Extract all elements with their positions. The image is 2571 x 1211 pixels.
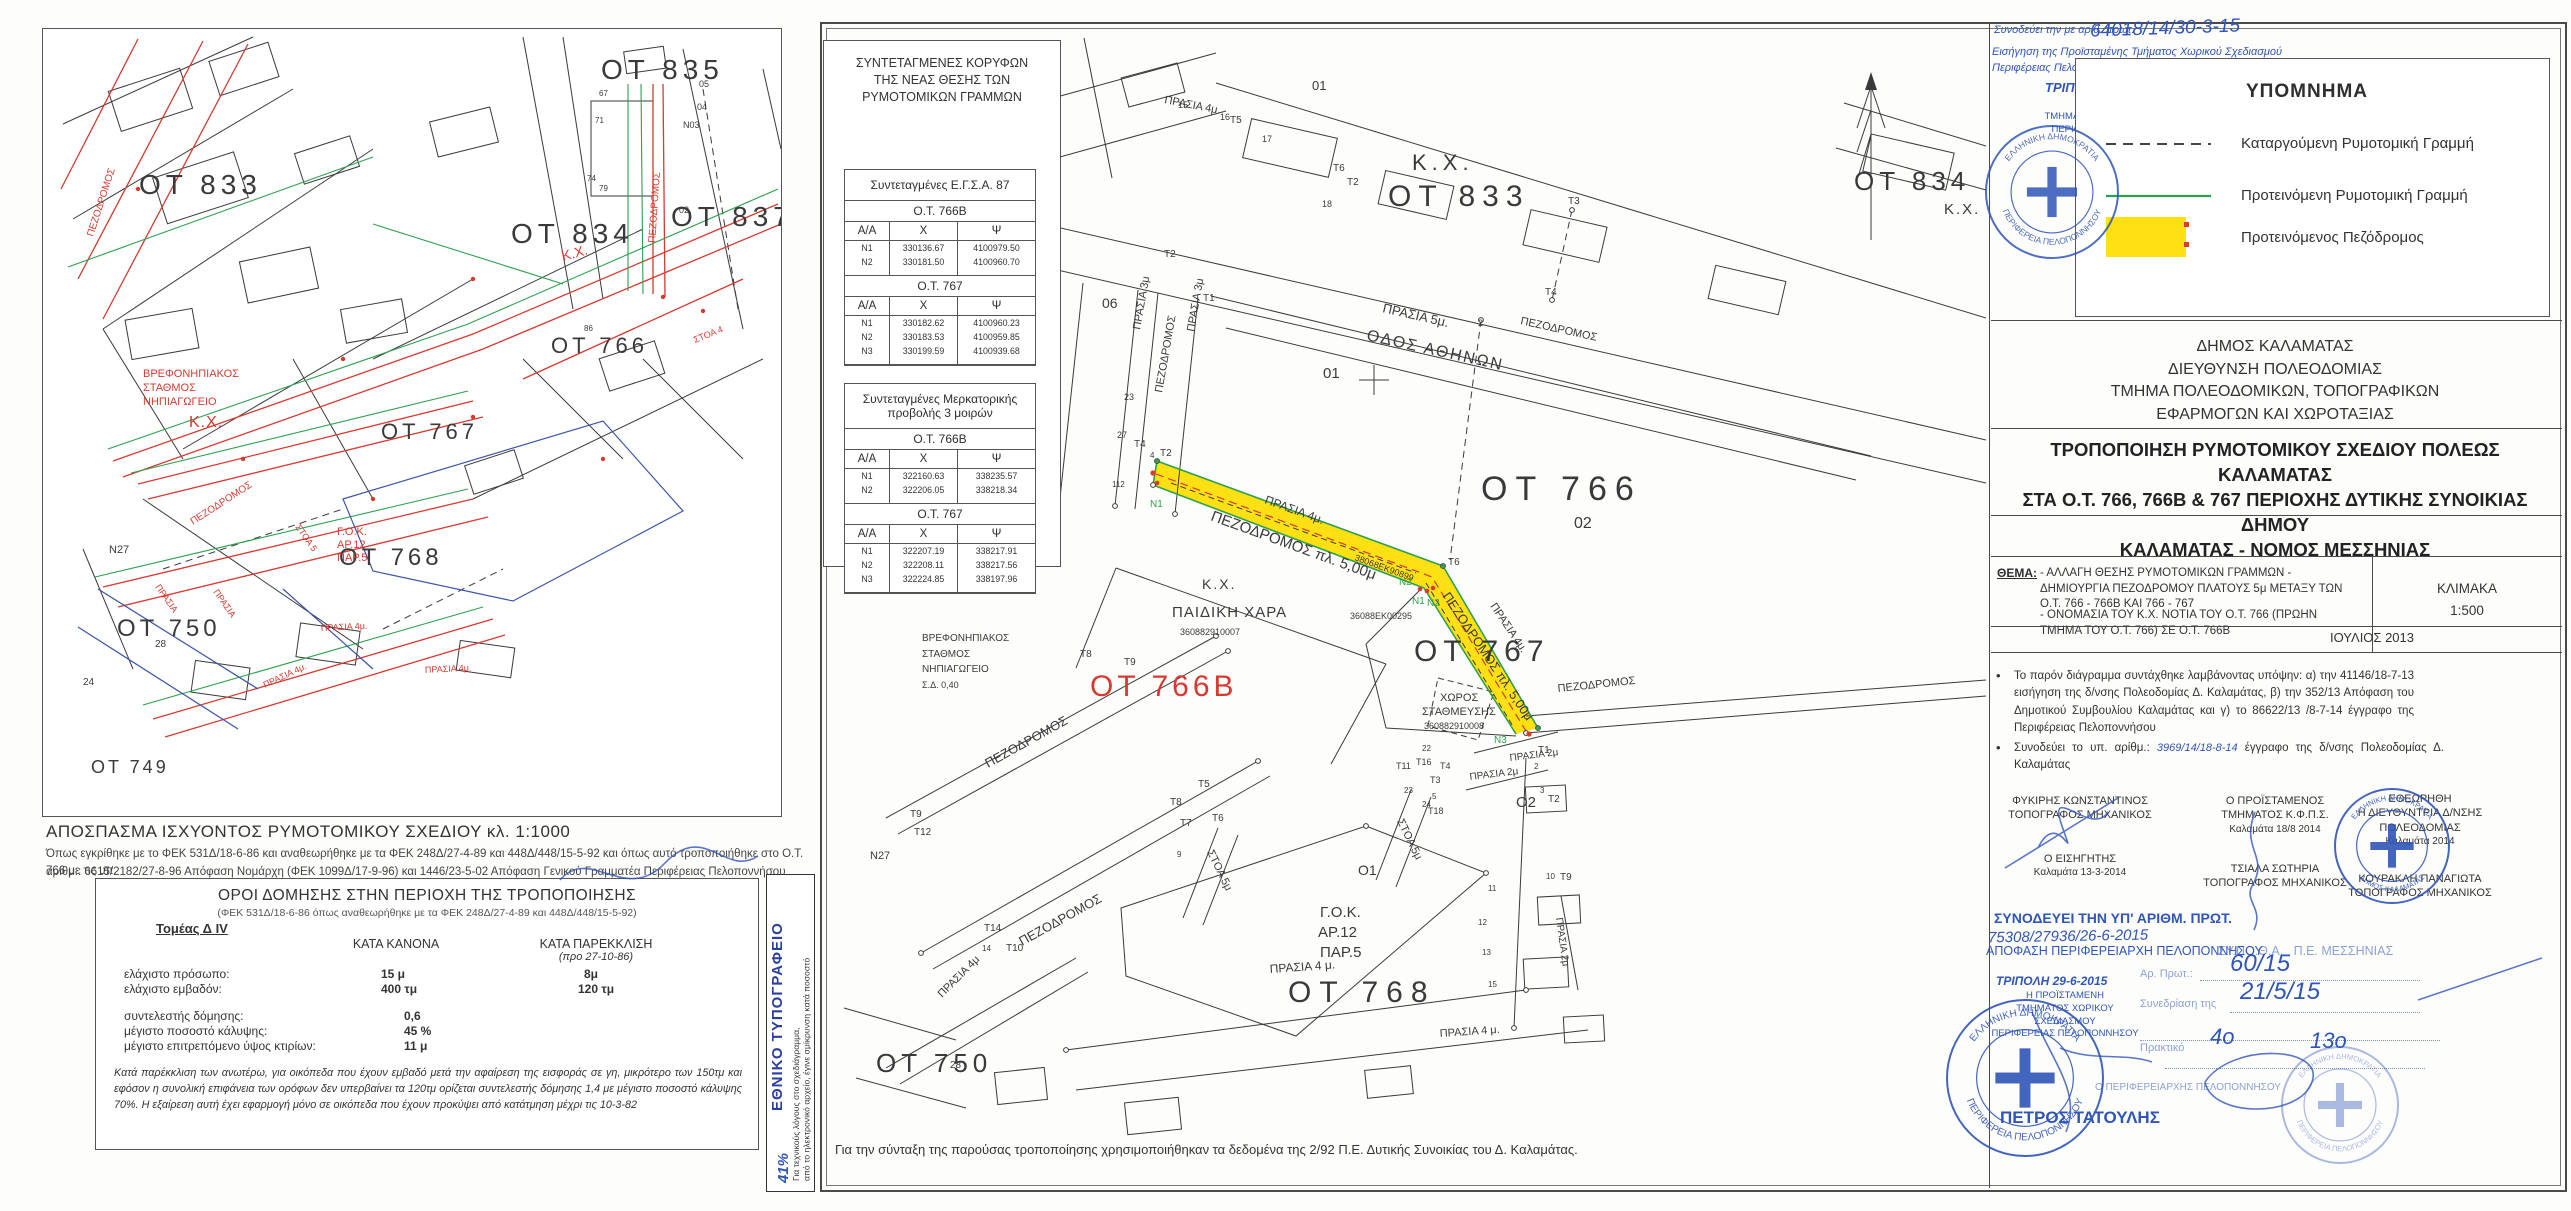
map-label: Ν2 <box>1399 577 1412 588</box>
map-label: Τ6 <box>1448 557 1460 568</box>
tb-line2 <box>1991 428 2562 429</box>
map-label: ΠΕΖΟΔΡΟΜΟΣ <box>1016 891 1104 949</box>
map-label: ΣΤΑΘΜΕΥΣΗΣ <box>1422 706 1496 718</box>
coords-value: 4100959.85 <box>957 330 1035 344</box>
approval-line1: ΣΥΝΟΔΕΥΕΙ ΤΗΝ ΥΠ' ΑΡΙΘΜ. ΠΡΩΤ. <box>1994 910 2232 926</box>
coords-header: Ψ <box>957 450 1035 469</box>
coords-header: Χ <box>889 297 957 316</box>
title-line3: ΚΑΛΑΜΑΤΑΣ - ΝΟΜΟΣ ΜΕΣΣΗΝΙΑΣ <box>1995 538 2555 563</box>
printing-office-title: ΕΘΝΙΚΟ ΤΥΠΟΓΡΑΦΕΙΟ <box>769 881 786 1111</box>
map-label: ΠΕΖΟΔΡΟΜΟΣ <box>85 167 117 238</box>
map-label: ΧΩΡΟΣ <box>1440 692 1478 704</box>
note2-prefix: Συνοδεύει το υπ. αρίθμ.: <box>2014 742 2150 754</box>
map-label: ΝΗΠΙΑΓΩΓΕΙΟ <box>143 396 217 408</box>
coords-value: 4100979.50 <box>957 241 1035 255</box>
praktiko-dots <box>2165 1056 2425 1069</box>
perifereiarchis-name: ΠΕΤΡΟΣ ΤΑΤΟΥΛΗΣ <box>2000 1108 2160 1128</box>
dept-line4: ΕΦΑΡΜΟΓΩΝ ΚΑΙ ΧΩΡΟΤΑΞΙΑΣ <box>1995 404 2555 427</box>
map-label: ΠΕΖΟΔΡΟΜΟΣ <box>1153 314 1178 393</box>
map-label: Τ2 <box>1160 448 1172 459</box>
reduction-percentage: 41% <box>775 1133 792 1183</box>
map-label: Ο2 <box>1516 794 1536 811</box>
map-label: 3 <box>1540 786 1545 795</box>
map-label: Ν1 <box>1150 499 1163 510</box>
map-label: ΟΤ 749 <box>91 757 169 777</box>
map-label: 28 <box>950 1060 962 1071</box>
coords-value: 338197.96 <box>957 572 1035 592</box>
map-label: 2 <box>1534 762 1539 771</box>
coords-table: Συντεταγμένες Μερκατορικής προβολής 3 μο… <box>844 383 1036 594</box>
dept-line1: ΔΗΜΟΣ ΚΑΛΑΜΑΤΑΣ <box>1995 336 2555 359</box>
map-label: Τ6 <box>1333 163 1345 174</box>
coords-value: Ν2 <box>845 558 889 572</box>
map-label: Τ1 <box>1203 293 1215 304</box>
tb-line3 <box>1991 515 2562 516</box>
coords-header: Α/Α <box>845 450 889 469</box>
tb-line6 <box>1991 626 2562 627</box>
klimaka-value: 1:500 <box>2372 600 2562 622</box>
dept-line3: ΤΜΗΜΑ ΠΟΛΕΟΔΟΜΙΚΩΝ, ΤΟΠΟΓΡΑΦΙΚΩΝ <box>1995 381 2555 404</box>
map-label: Τ16 <box>1416 757 1432 767</box>
map-label: 24 <box>83 677 95 688</box>
coords-header: Χ <box>889 525 957 544</box>
tb-line1 <box>1991 320 2562 321</box>
map-label: Γ.Ο.Κ. <box>1320 904 1361 921</box>
map-label: Τ18 <box>1428 806 1444 816</box>
coords-value: 322208.11 <box>889 558 957 572</box>
map-label: 12 <box>1478 918 1487 927</box>
map-label: 67 <box>599 89 608 98</box>
map-label: Τ2 <box>1164 249 1176 260</box>
terms-value: 0,6 <box>404 1009 421 1023</box>
coords-header: Ψ <box>957 297 1035 316</box>
coords-value: 330199.59 <box>889 344 957 364</box>
thema-item1: - ΑΛΛΑΓΗ ΘΕΣΗΣ ΡΥΜΟΤΟΜΙΚΩΝ ΓΡΑΜΜΩΝ - ΔΗΜ… <box>2040 566 2360 613</box>
dept-line2: ΔΙΕΥΘΥΝΣΗ ΠΟΛΕΟΔΟΜΙΑΣ <box>1995 359 2555 382</box>
coords-value: 4100939.68 <box>957 344 1035 364</box>
map-label: Κ.Χ. <box>189 414 223 431</box>
map-label: Σ.Δ. 0,40 <box>922 680 959 690</box>
map-label: ΠΡΑΣΙΑ 4μ. <box>425 663 472 675</box>
map-label: N27 <box>109 544 129 556</box>
map-label: ΠΕΖΟΔΡΟΜΟΣ <box>1557 675 1636 695</box>
map-label: 01 <box>1323 365 1340 382</box>
map-label: ΠΡΑΣΙΑ 4μ. <box>1163 94 1221 117</box>
map-label: Τ14 <box>984 923 1002 934</box>
map-label: Τ7 <box>1180 818 1192 829</box>
praktiko-dots-top <box>2140 1028 2440 1041</box>
coords-table-name: Συντεταγμένες Ε.Γ.Σ.Α. 87 <box>845 170 1035 201</box>
sig1-title: Ο ΕΙΣΗΓΗΤΗΣ <box>2000 852 2160 866</box>
map-label: ΠΡΑΣΙΑ 4 μ. <box>1439 1024 1500 1040</box>
map-label: Τ12 <box>914 827 932 838</box>
map-label: 23 <box>1124 392 1134 402</box>
coords-value: 322207.19 <box>889 544 957 558</box>
terms-value: 15 μ <box>381 967 405 981</box>
map-label: 02 <box>1574 515 1592 532</box>
coords-value: 338218.34 <box>957 483 1035 503</box>
map-label: ΟΤ 833 <box>139 169 262 200</box>
map-label: Τ4 <box>1134 439 1146 450</box>
terms-value: 11 μ <box>404 1039 427 1053</box>
map-label: Ν2 <box>1427 598 1440 609</box>
map-label: ΠΑΡ.5 <box>337 552 367 564</box>
legend-yellow-dot2 <box>2184 242 2189 247</box>
coords-block-name: Ο.Τ. 766Β <box>845 429 1035 450</box>
coords-table: Συντεταγμένες Ε.Γ.Σ.Α. 87Ο.Τ. 766ΒΑ/ΑΧΨΝ… <box>844 169 1036 366</box>
existing-plan-map: ΟΤ 833ΟΤ 835ΟΤ 834Κ.Χ.ΟΤ 837ΟΤ 766ΟΤ 767… <box>42 28 782 817</box>
map-label: 15 <box>1178 100 1188 110</box>
map-label: Ν1 <box>1412 596 1425 607</box>
legend-swatch-green <box>2106 181 2216 211</box>
sig1-name: ΦΥΚΙΡΗΣ ΚΩΝΣΤΑΝΤΙΝΟΣ <box>2000 794 2160 808</box>
coords-header: Α/Α <box>845 297 889 316</box>
map-label: 01 <box>1312 78 1326 93</box>
map-label: 11 <box>1488 884 1497 893</box>
map-label: Τ8 <box>1080 649 1092 660</box>
map-label: ΟΤ 750 <box>117 615 221 642</box>
map-label: ΟΤ 750 <box>876 1048 992 1078</box>
note2-number: 3969/14/18-8-14 <box>2157 742 2238 754</box>
map-label: ΟΤ 833 <box>1388 180 1530 213</box>
map-label: ΠΡΑΣΙΑ 5μ. <box>1381 300 1450 330</box>
map-label: Ο1 <box>1358 862 1377 878</box>
map-label: 14 <box>982 944 991 953</box>
map-label: Τ11 <box>1396 761 1411 771</box>
map-label: ΟΤ 768 <box>1288 976 1436 1009</box>
building-terms-table: ΟΡΟΙ ΔΟΜΗΣΗΣ ΣΤΗΝ ΠΕΡΙΟΧΗ ΤΗΣ ΤΡΟΠΟΠΟΙΗΣ… <box>95 878 759 1150</box>
map-label: 05 <box>699 79 709 89</box>
printing-office-line2: από το ηλεκτρονικό αρχείο, έγινε <box>802 1057 812 1181</box>
legend-title: ΥΠΟΜΝΗΜΑ <box>2246 81 2368 103</box>
map-label: Τ6 <box>1212 813 1224 824</box>
map-label: Τ2 <box>1347 177 1359 188</box>
map-label: 23 <box>1404 786 1413 795</box>
map-label: ΠΡΑΣΙΑ 2μ <box>1469 766 1519 783</box>
terms-col-kanona: ΚΑΤΑ ΚΑΝΟΝΑ <box>316 937 476 951</box>
center-map-caption: Για την σύνταξη της παρούσας τροποποίηση… <box>835 1142 1578 1157</box>
map-label: 36088ΕΚ00295 <box>1350 611 1412 621</box>
map-label: ΠΡΑΣΙΑ 4 μ. <box>1269 957 1335 976</box>
map-label: ΟΤ 766Β <box>1090 670 1238 703</box>
coords-block-name: Ο.Τ. 767 <box>845 276 1035 297</box>
map-label: 79 <box>599 184 608 193</box>
coords-value: 4100960.70 <box>957 255 1035 275</box>
approval-pr2: ΤΜΗΜΑΤΟΣ ΧΩΡΙΚΟΥ ΣΧΕΔΙΑΣΜΟΥ <box>1990 1003 2140 1029</box>
coords-value: 4100960.23 <box>957 316 1035 330</box>
coords-value: Ν1 <box>845 316 889 330</box>
map-label: 16 <box>1220 112 1230 122</box>
coords-header: Χ <box>889 450 957 469</box>
coords-head2: ΤΗΣ ΝΕΑΣ ΘΕΣΗΣ ΤΩΝ <box>824 72 1060 89</box>
sig1-date: Καλαμάτα 13-3-2014 <box>2000 866 2160 879</box>
map-label: ΣΤΑΘΜΟΣ <box>143 382 196 394</box>
map-label: ΟΤ 766 <box>551 333 648 358</box>
plan-sheet: ΟΤ 833ΟΤ 835ΟΤ 834Κ.Χ.ΟΤ 837ΟΤ 766ΟΤ 767… <box>0 0 2571 1211</box>
coords-header: Χ <box>889 222 957 241</box>
terms-value: 400 τμ <box>381 982 417 996</box>
map-label: 112 <box>1112 480 1125 489</box>
map-label: 5 <box>1432 792 1437 801</box>
map-label: ΠΡΑΣΙΑ <box>153 582 179 614</box>
map-label: 9 <box>1177 850 1182 859</box>
sig3-title: Η ΔΙΕΥΘΥΝΤΡΙΑ Δ/ΝΣΗΣ ΠΟΛΕΟΔΟΜΙΑΣ <box>2320 806 2520 835</box>
title-line2: ΣΤΑ Ο.Τ. 766, 766Β & 767 ΠΕΡΙΟΧΗΣ ΔΥΤΙΚΗ… <box>1995 488 2555 538</box>
coords-value: Ν3 <box>845 572 889 592</box>
thema-label: ΘΕΜΑ: <box>1997 566 2037 580</box>
arprot-value: 60/15 <box>2230 950 2290 978</box>
coords-head1: ΣΥΝΤΕΤΑΓΜΕΝΕΣ ΚΟΡΥΦΩΝ <box>824 55 1060 72</box>
top-annotation-line2: Εισήγηση της Προϊσταμένης Τμήματος Χωρικ… <box>1992 46 2282 58</box>
coords-value: 330183.53 <box>889 330 957 344</box>
signature-col1-title: Ο ΕΙΣΗΓΗΤΗΣ Καλαμάτα 13-3-2014 <box>2000 852 2160 879</box>
map-label: ΠΡΑΣΙΑ 3μ <box>1131 275 1152 330</box>
terms-sector: Τομέας Δ IV <box>156 921 228 936</box>
map-label: 02 <box>679 205 689 215</box>
coords-value: 322160.63 <box>889 469 957 483</box>
map-label: ΟΤ 834 <box>1854 166 1970 196</box>
synedriasi-label: Συνεδρίαση της <box>2140 998 2216 1010</box>
map-label: Τ9 <box>1124 657 1136 668</box>
coords-value: 322224.85 <box>889 572 957 592</box>
map-label: ΝΗΠΙΑΓΩΓΕΙΟ <box>922 664 989 675</box>
coords-value: Ν1 <box>845 241 889 255</box>
tb-line5 <box>1991 652 2562 653</box>
map-label: 27 <box>1117 430 1127 440</box>
map-label: Τ8 <box>1170 797 1182 808</box>
map-label: 71 <box>595 116 604 125</box>
terms-row-label: μέγιστο επιτρεπόμενο ύψος κτιρίων: <box>124 1039 316 1053</box>
map-label: Τ1 <box>1538 745 1550 756</box>
coords-header: Ψ <box>957 222 1035 241</box>
praktiko-value2: 13ο <box>2310 1028 2347 1054</box>
map-label: 13 <box>1482 948 1491 957</box>
map-label: ΠΡΑΣΙΑ 3μ <box>1185 277 1206 332</box>
terms-row-label: ελάχιστο πρόσωπο: <box>124 967 230 981</box>
legend-swatch-dashed <box>2106 129 2216 159</box>
coords-header: Α/Α <box>845 525 889 544</box>
drawing-title: ΤΡΟΠΟΠΟΙΗΣΗ ΡΥΜΟΤΟΜΙΚΟΥ ΣΧΕΔΙΟΥ ΠΟΛΕΩΣ Κ… <box>1995 438 2555 563</box>
map-label: ΟΤ 766 <box>1481 470 1642 508</box>
signature-col3-name: ΚΟΥΡΑΚΛΗ ΠΑΝΑΓΙΩΤΑ ΤΟΠΟΓΡΑΦΟΣ ΜΗΧΑΝΙΚΟΣ <box>2320 872 2520 901</box>
map-label: ΣΤΑΘΜΟΣ <box>922 649 970 660</box>
map-label: 86 <box>584 324 593 333</box>
terms-row-label: μέγιστο ποσοστό κάλυψης: <box>124 1024 267 1038</box>
map-label: ΣΤΟΑ 5μ <box>1394 817 1424 862</box>
approval-tripoli: ΤΡΙΠΟΛΗ 29-6-2015 <box>1996 974 2107 988</box>
left-map-blue-lines <box>78 421 683 729</box>
map-label: Τ9 <box>910 809 922 820</box>
coords-value: 322206.05 <box>889 483 957 503</box>
legend-item1-label: Καταργούμενη Ρυμοτομική Γραμμή <box>2241 135 2474 152</box>
coords-value: Ν2 <box>845 483 889 503</box>
sig3-role: ΤΟΠΟΓΡΑΦΟΣ ΜΗΧΑΝΙΚΟΣ <box>2320 886 2520 900</box>
sig1-role: ΤΟΠΟΓΡΑΦΟΣ ΜΗΧΑΝΙΚΟΣ <box>2000 808 2160 822</box>
note2-bullet: • <box>1996 740 2001 755</box>
arprot-label: Αρ. Πρωτ.: <box>2140 968 2193 980</box>
map-label: Κ.Χ. <box>1944 201 1980 218</box>
note1: Το παρόν διάγραμμα συντάχθηκε λαμβάνοντα… <box>2014 668 2414 737</box>
map-label: 360882910007 <box>1180 627 1240 637</box>
map-label: Τ9 <box>1560 872 1572 883</box>
note2: Συνοδεύει το υπ. αρίθμ.: 3969/14/18-8-14… <box>2014 740 2444 775</box>
map-label: Τ4 <box>1440 761 1451 771</box>
drawing-date: ΙΟΥΛΙΟΣ 2013 <box>2330 630 2414 645</box>
coords-header: Α/Α <box>845 222 889 241</box>
approval-pr1: Η ΠΡΟΪΣΤΑΜΕΝΗ <box>1990 990 2140 1003</box>
map-label: 2 <box>1478 318 1483 328</box>
coords-grid: Α/ΑΧΨΝ1322207.19338217.91Ν2322208.113382… <box>845 525 1035 593</box>
coords-head3: ΡΥΜΟΤΟΜΙΚΩΝ ΓΡΑΜΜΩΝ <box>824 89 1060 106</box>
coords-value: Ν1 <box>845 469 889 483</box>
klimaka-label: ΚΛΙΜΑΚΑ <box>2372 578 2562 600</box>
coords-grid: Α/ΑΧΨΝ1330182.624100960.23Ν2330183.53410… <box>845 297 1035 365</box>
map-label: ΣΤΟΑ 4 <box>692 324 724 345</box>
coords-block-name: Ο.Τ. 767 <box>845 504 1035 525</box>
coords-grid: Α/ΑΧΨΝ1322160.63338235.57Ν2322206.053382… <box>845 450 1035 504</box>
map-label: 28 <box>155 639 167 650</box>
coords-value: Ν1 <box>845 544 889 558</box>
coords-value: 338217.91 <box>957 544 1035 558</box>
terms-col-parekklisi: ΚΑΤΑ ΠΑΡΕΚΚΛΙΣΗ <box>496 937 696 951</box>
board-region: Π.Ε. ΜΕΣΣΗΝΙΑΣ <box>2294 944 2394 958</box>
title-line1: ΤΡΟΠΟΠΟΙΗΣΗ ΡΥΜΟΤΟΜΙΚΟΥ ΣΧΕΔΙΟΥ ΠΟΛΕΩΣ Κ… <box>1995 438 2555 488</box>
legend-swatch-yellow <box>2106 217 2186 257</box>
map-label: 74 <box>587 174 596 183</box>
map-label: 04 <box>697 102 707 112</box>
left-map-caption-title: ΑΠΟΣΠΑΣΜΑ ΙΣΧΥΟΝΤΟΣ ΡΥΜΟΤΟΜΙΚΟΥ ΣΧΕΔΙΟΥ … <box>46 822 570 842</box>
department-block: ΔΗΜΟΣ ΚΑΛΑΜΑΤΑΣ ΔΙΕΥΘΥΝΣΗ ΠΟΛΕΟΔΟΜΙΑΣ ΤΜ… <box>1995 336 2555 427</box>
terms-value: 8μ <box>584 967 598 981</box>
coordinates-panel: ΣΥΝΤΕΤΑΓΜΕΝΕΣ ΚΟΡΥΦΩΝ ΤΗΣ ΝΕΑΣ ΘΕΣΗΣ ΤΩΝ… <box>823 40 1061 567</box>
map-label: ΠΡΑΣΙΑ 2μ <box>1553 917 1571 967</box>
coords-value: Ν2 <box>845 255 889 275</box>
coords-value: 330136.67 <box>889 241 957 255</box>
map-label: ΒΡΕΦΟΝΗΠΙΑΚΟΣ <box>922 633 1009 644</box>
map-label: 360882910008 <box>1424 721 1484 731</box>
terms-value: 45 % <box>404 1024 431 1038</box>
map-label: ΑΡ.12 <box>337 539 366 551</box>
coords-header: Ψ <box>957 525 1035 544</box>
map-label: N27 <box>870 850 890 862</box>
existing-plan-map-drawing: ΟΤ 833ΟΤ 835ΟΤ 834Κ.Χ.ΟΤ 837ΟΤ 766ΟΤ 767… <box>43 29 781 816</box>
legend-item3-label: Προτεινόμενος Πεζόδρομος <box>2241 229 2424 246</box>
terms-note: Κατά παρέκκλιση των ανωτέρω, για οικόπεδ… <box>114 1065 742 1114</box>
map-label: Τ3 <box>1430 775 1441 785</box>
map-label: 10 <box>1546 872 1555 881</box>
coords-value: Ν3 <box>845 344 889 364</box>
coords-value: 338235.57 <box>957 469 1035 483</box>
legend-yellow-dot1 <box>2184 222 2189 227</box>
approval-pr3: ΠΕΡΙΦΕΡΕΙΑΣ ΠΕΛΟΠΟΝΝΗΣΟΥ <box>1990 1028 2140 1041</box>
map-label: Τ4 <box>1545 287 1557 298</box>
legend-item2-label: Προτεινόμενη Ρυμοτομική Γραμμή <box>2241 187 2468 204</box>
map-label: Τ5 <box>1198 779 1210 790</box>
map-label: Γ.Ο.Κ. <box>337 526 367 538</box>
map-label: 15 <box>1488 980 1497 989</box>
coords-value: Ν2 <box>845 330 889 344</box>
signature-col1: ΦΥΚΙΡΗΣ ΚΩΝΣΤΑΝΤΙΝΟΣ ΤΟΠΟΓΡΑΦΟΣ ΜΗΧΑΝΙΚΟ… <box>2000 794 2160 823</box>
coords-block-name: Ο.Τ. 766Β <box>845 201 1035 222</box>
terms-row-label: συντελεστής δόμησης: <box>124 1009 243 1023</box>
national-printing-office-box: ΕΘΝΙΚΟ ΤΥΠΟΓΡΑΦΕΙΟ Για τεχνικούς λόγους … <box>766 874 815 1192</box>
terms-subtitle: (ΦΕΚ 531Δ/18-6-86 όπως αναθεωρήθηκε με τ… <box>96 907 758 919</box>
coords-grid: Α/ΑΧΨΝ1330136.674100979.50Ν2330181.50410… <box>845 222 1035 276</box>
praktiko-value1: 4ο <box>2210 1024 2234 1050</box>
map-label: Ν3 <box>1494 735 1507 746</box>
sig3-approved: ΕΘΕΩΡΗΘΗ <box>2320 792 2520 806</box>
map-label: ΠΑΙΔΙΚΗ ΧΑΡΑ <box>1172 604 1287 621</box>
thema-item2: - ΟΝΟΜΑΣΙΑ ΤΟΥ Κ.Χ. ΝΟΤΙΑ ΤΟΥ Ο.Τ. 766 (… <box>2040 608 2360 639</box>
printing-office-line3: σμίκρυνση κατά ποσοστό <box>802 958 812 1055</box>
coords-value: 330181.50 <box>889 255 957 275</box>
map-label: ΟΤ 767 <box>381 419 478 444</box>
praktiko-label: Πρακτικό <box>2140 1042 2184 1054</box>
sig3-date: Καλαμάτα 2014 <box>2320 835 2520 848</box>
north-arrow <box>1865 72 1877 90</box>
map-label: ΑΡ.12 <box>1318 924 1357 941</box>
map-label: 17 <box>1262 134 1272 144</box>
map-label: Κ.Χ. <box>1412 150 1474 175</box>
terms-col-parekklisi-sub: (προ 27-10-86) <box>496 951 696 963</box>
map-label: 22 <box>1422 744 1431 753</box>
map-label: 4 <box>1150 451 1155 460</box>
coords-value: 330182.62 <box>889 316 957 330</box>
legend-box: ΥΠΟΜΝΗΜΑ Καταργούμενη Ρυμοτομική Γραμμή … <box>2075 58 2550 317</box>
map-label: Τ5 <box>1230 115 1242 126</box>
map-label: Τ2 <box>1548 794 1560 805</box>
signature-col3: ΕΘΕΩΡΗΘΗ Η ΔΙΕΥΘΥΝΤΡΙΑ Δ/ΝΣΗΣ ΠΟΛΕΟΔΟΜΙΑ… <box>2320 792 2520 848</box>
sig3-name: ΚΟΥΡΑΚΛΗ ΠΑΝΑΓΙΩΤΑ <box>2320 872 2520 886</box>
map-label: ΠΕΖΟΔΡΟΜΟΣ <box>982 713 1070 771</box>
map-label: N03 <box>683 120 700 130</box>
terms-value: 120 τμ <box>578 982 614 996</box>
map-label: ΒΡΕΦΟΝΗΠΙΑΚΟΣ <box>143 368 239 380</box>
map-label: Κ.Χ. <box>1202 576 1236 592</box>
printing-office-line1: Για τεχνικούς λόγους στο σχεδιάγραμμα, <box>791 1028 801 1182</box>
map-label: ΠΕΖΟΔΡΟΜΟΣ <box>647 172 663 244</box>
terms-title: ΟΡΟΙ ΔΟΜΗΣΗΣ ΣΤΗΝ ΠΕΡΙΟΧΗ ΤΗΣ ΤΡΟΠΟΠΟΙΗΣ… <box>96 887 758 905</box>
coords-value: 338217.56 <box>957 558 1035 572</box>
map-label: Τ3 <box>1568 196 1580 207</box>
map-label: 18 <box>1322 199 1332 209</box>
map-label: ΠΕΖΟΔΡΟΜΟΣ <box>1519 315 1598 344</box>
map-label: ΠΡΑΣΙΑ 4μ <box>936 954 983 1001</box>
perifereiarchis-title: Ο ΠΕΡΙΦΕΡΕΙΑΡΧΗΣ ΠΕΛΟΠΟΝΝΗΣΟΥ <box>2095 1082 2295 1093</box>
note1-bullet: • <box>1996 668 2001 683</box>
terms-row-label: ελάχιστο εμβαδόν: <box>124 982 222 996</box>
synedriasi-value: 21/5/15 <box>2240 978 2320 1006</box>
tb-line4 <box>1991 556 2562 557</box>
map-label: Τ10 <box>1006 943 1024 954</box>
coords-table-name: Συντεταγμένες Μερκατορικής προβολής 3 μο… <box>845 384 1035 429</box>
map-label: 06 <box>1102 295 1118 311</box>
